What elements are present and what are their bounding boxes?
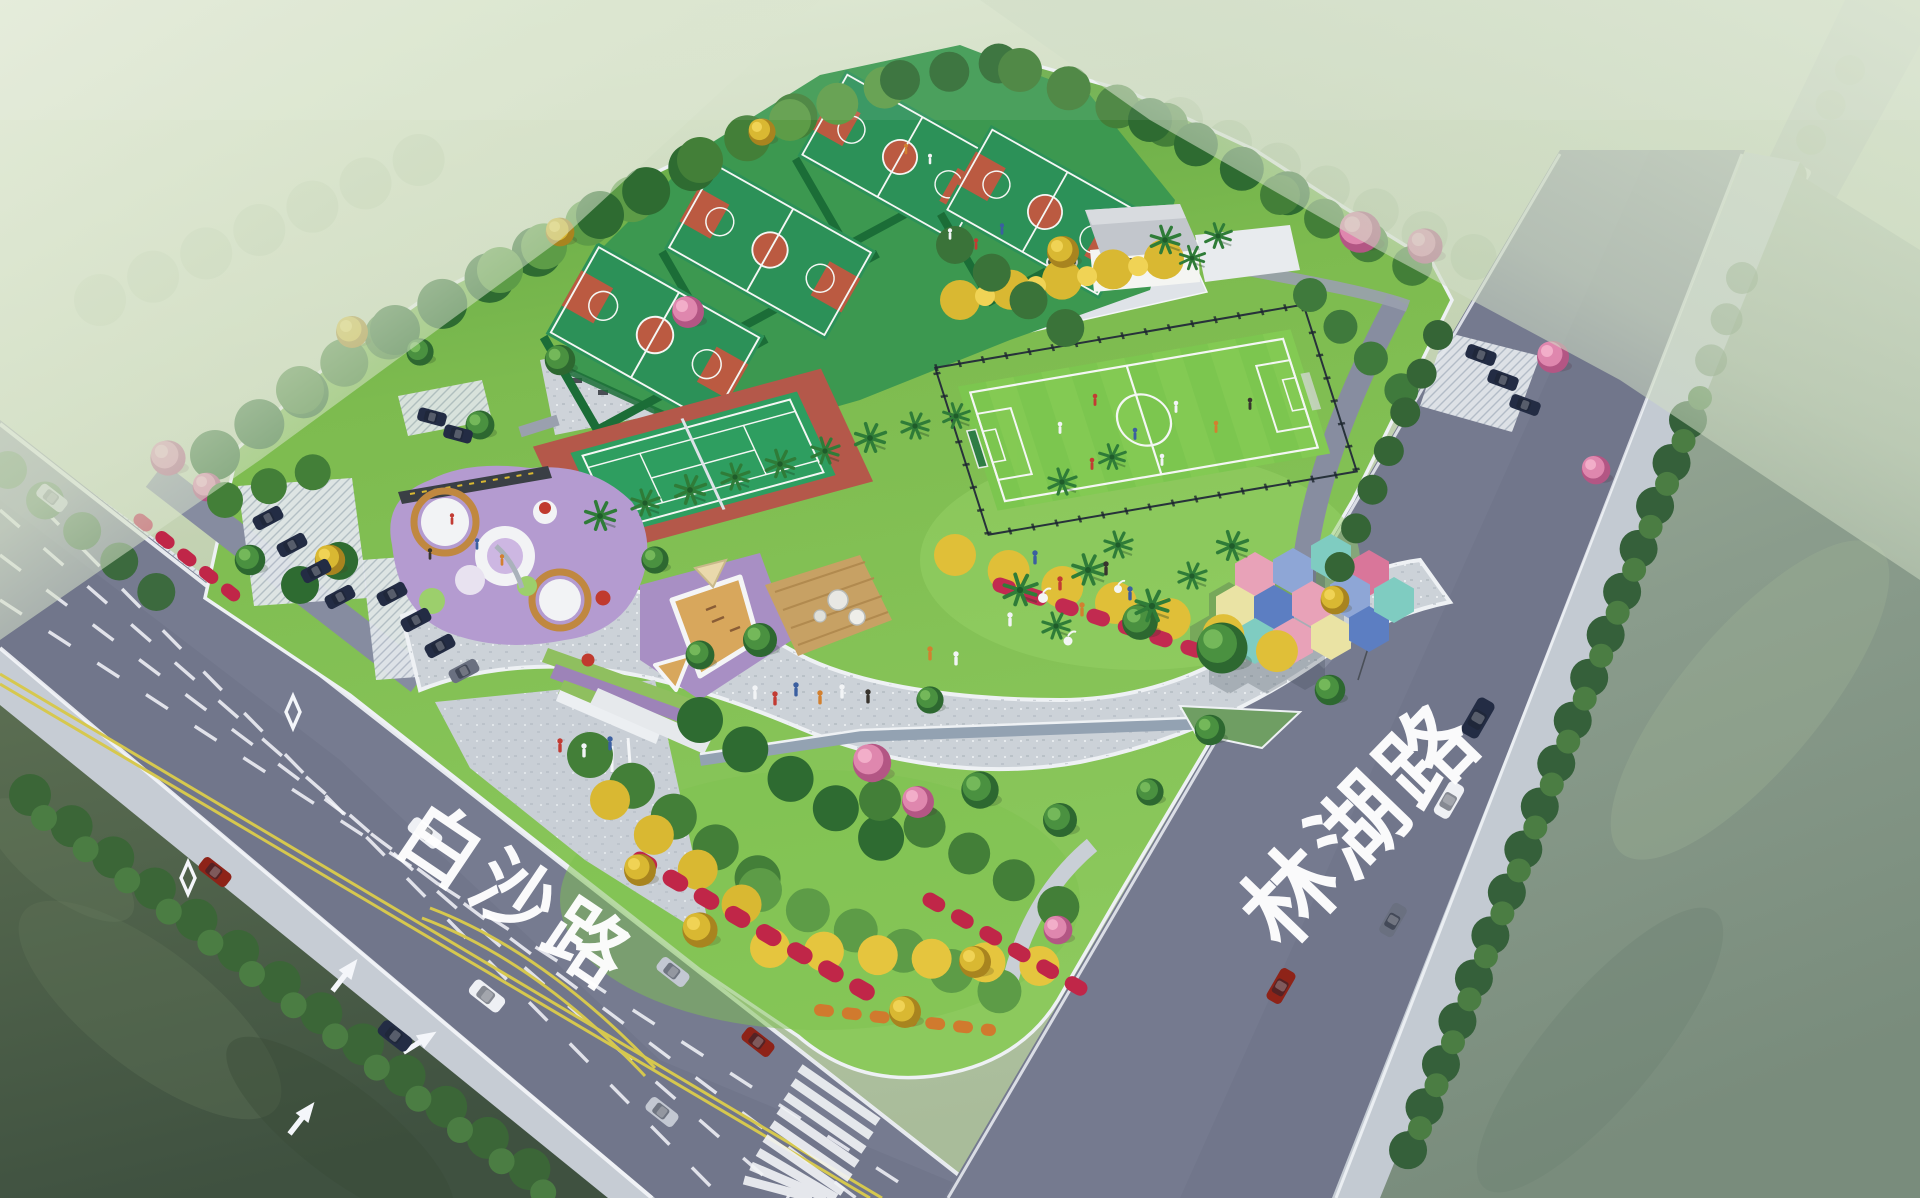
play-dome xyxy=(596,591,611,606)
vignette xyxy=(0,0,1920,120)
park-masterplan-rendering: 白沙路 林湖路 xyxy=(0,0,1920,1198)
aerial-scene: 白沙路 林湖路 xyxy=(0,0,1920,1198)
